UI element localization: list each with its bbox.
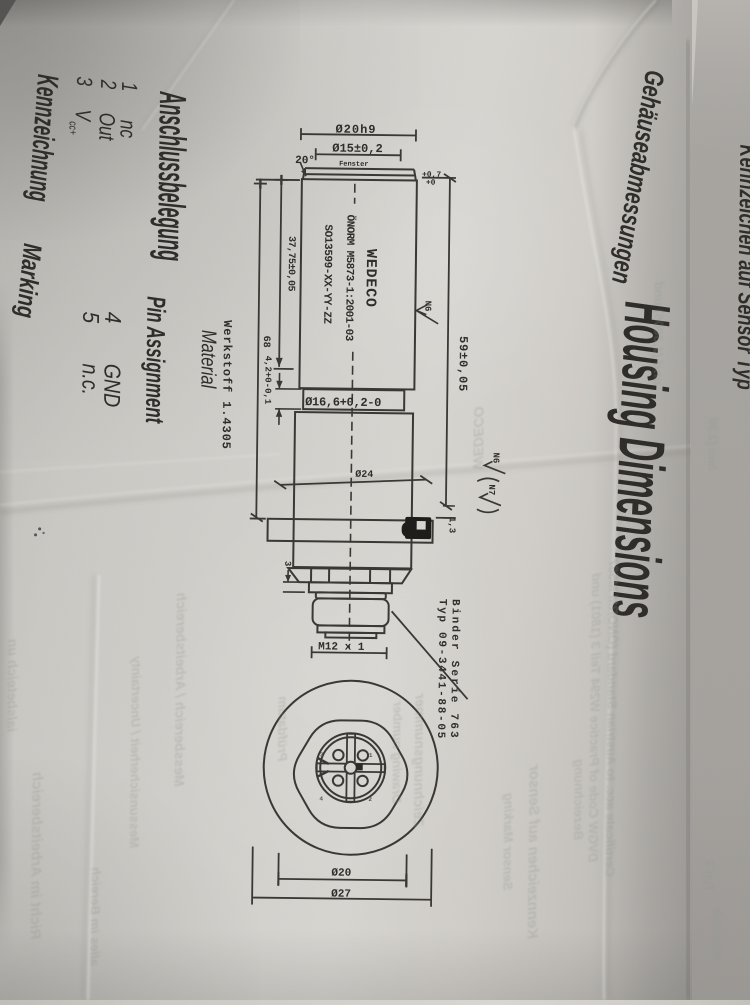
svg-text:Messunsicherheit / Uncertainty: Messunsicherheit / Uncertainty (127, 655, 144, 848)
svg-text:DVGW Code of Practice W294 Tei: DVGW Code of Practice W294 Teil 3 (1801)… (586, 572, 605, 862)
svg-text:Material: Material (197, 330, 221, 389)
svg-text:Kennzeichen auf Sensor Typ: Kennzeichen auf Sensor Typ (732, 144, 750, 390)
svg-text:59±0,05: 59±0,05 (455, 336, 470, 392)
svg-text:Ø20: Ø20 (331, 868, 351, 880)
svg-text:68: 68 (260, 336, 271, 348)
svg-text:Pin Assignment: Pin Assignment (140, 296, 171, 425)
svg-text:WEDECO: WEDECO (361, 249, 379, 308)
svg-text:37,75±0,05: 37,75±0,05 (285, 236, 297, 292)
svg-text:Binder Serie 763: Binder Serie 763 (447, 599, 461, 740)
svg-text:Fenster: Fenster (339, 161, 369, 169)
svg-text:Richtlinie: Richtlinie (709, 907, 724, 961)
svg-text:N6: N6 (422, 301, 432, 312)
svg-text:und (1.3005) und: und (1.3005) und (650, 281, 666, 386)
svg-text:Prüfdatum: Prüfdatum (275, 696, 291, 762)
svg-text:4: 4 (319, 795, 323, 802)
svg-text:Kennzeichnung: Kennzeichnung (22, 73, 64, 202)
svg-text:Sensor Marking: Sensor Marking (500, 793, 516, 891)
svg-text:Ø20h9: Ø20h9 (335, 123, 376, 138)
svg-text:20°: 20° (295, 155, 315, 167)
svg-text:Ø15±0,2: Ø15±0,2 (332, 141, 383, 156)
svg-text:cc+: cc+ (66, 121, 78, 135)
svg-text:WEDECO: WEDECO (470, 407, 487, 470)
svg-text:n.c.: n.c. (77, 363, 103, 395)
svg-text:M12 x 1: M12 x 1 (318, 641, 365, 654)
svg-text:SO13599-XX-YY-ZZ: SO13599-XX-YY-ZZ (320, 224, 333, 324)
svg-text:+0: +0 (426, 179, 436, 188)
svg-text:4,2+0-0,1: 4,2+0-0,1 (262, 356, 273, 405)
svg-text:5: 5 (78, 311, 104, 324)
svg-text:3: 3 (282, 561, 292, 567)
svg-text:bnu (1.30: bnu (1.30 (705, 417, 720, 470)
svg-text:2: 2 (368, 796, 372, 803)
svg-text:ÖNORM M5873-1:2001-03: ÖNORM M5873-1:2001-03 (342, 215, 357, 342)
svg-text:N7: N7 (486, 484, 496, 495)
svg-text:Richt im Arbeitsbereich: Richt im Arbeitsbereich (27, 772, 46, 940)
svg-text:Marking: Marking (11, 242, 48, 319)
svg-text:1: 1 (369, 752, 373, 759)
svg-text:Gehäuseabmessungen: Gehäuseabmessungen (605, 68, 669, 286)
svg-text:Messbereich / Arbeitsbereich: Messbereich / Arbeitsbereich (171, 593, 189, 787)
svg-text:Out: Out (94, 113, 119, 142)
svg-text:Ø24: Ø24 (355, 469, 373, 481)
svg-text:Zeichnungsnummer: Zeichnungsnummer (411, 692, 429, 829)
svg-text:alles im Bereich: alles im Bereich (87, 867, 103, 966)
svg-text:Ø16,6+0,2-0: Ø16,6+0,2-0 (305, 395, 381, 410)
svg-text:3: 3 (71, 76, 96, 86)
svg-text:1,3: 1,3 (447, 517, 457, 533)
svg-text:Typ 3: Typ 3 (702, 860, 716, 891)
svg-text:ialsbeteich un: ialsbeteich un (4, 639, 21, 733)
svg-text:N6: N6 (490, 452, 500, 463)
svg-text:Bezeichnung: Bezeichnung (571, 759, 587, 840)
svg-text:Kennzeichen auf Sensor: Kennzeichen auf Sensor (524, 764, 543, 940)
svg-text:Drawing number: Drawing number (389, 700, 405, 804)
svg-text:2: 2 (95, 79, 120, 90)
svg-text:Anschlussbelegung: Anschlussbelegung (149, 91, 193, 262)
svg-text:Ø27: Ø27 (331, 889, 351, 901)
svg-text:3: 3 (320, 751, 324, 758)
svg-text:Typ 09-3441-88-05: Typ 09-3441-88-05 (434, 599, 448, 740)
